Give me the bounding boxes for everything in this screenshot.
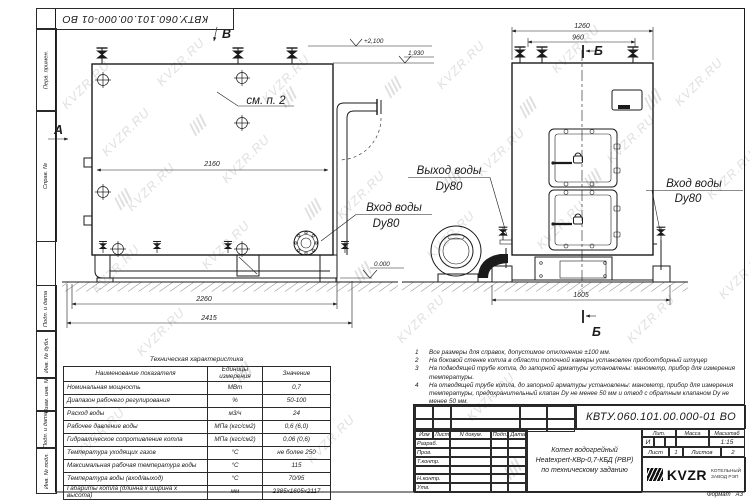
stamp-label: Справ. № bbox=[44, 163, 50, 189]
spec-unit: МПа (кгс/см2) bbox=[208, 434, 263, 447]
scale-header: Масштаб bbox=[709, 429, 745, 437]
spec-value: 115 bbox=[263, 460, 331, 473]
door-lock-icon bbox=[574, 153, 583, 163]
outlet-front-dy: Dy80 bbox=[436, 181, 463, 193]
stamp-label: Взам. инв. № bbox=[44, 377, 50, 413]
stamp-cell-vzam-inv: Взам. инв. № bbox=[36, 377, 57, 412]
dim-2160: 2160 bbox=[203, 161, 220, 168]
product-name-line: по техническому заданию bbox=[541, 466, 628, 476]
dim-960: 960 bbox=[572, 35, 584, 42]
spec-param: Расход воды bbox=[64, 408, 208, 421]
stamp-cell-inv-podl: Инв. № подл. bbox=[36, 447, 57, 494]
spec-unit: МПа (кгс/см2) bbox=[208, 421, 263, 434]
spec-unit: °С bbox=[208, 447, 263, 460]
note-number: 2 bbox=[415, 357, 429, 365]
spec-value: 0,6 (6,0) bbox=[263, 421, 331, 434]
valve-icon bbox=[515, 47, 526, 63]
spec-value: 70/95 bbox=[263, 473, 331, 486]
mass-value bbox=[676, 437, 709, 447]
inlet-side-dy: Dy80 bbox=[373, 218, 400, 230]
company-name-line1: КОТЕЛЬНЫЙ bbox=[711, 469, 741, 475]
title-block: КВТУ.060.101.00.000-01 ВО Изм Лист N док… bbox=[413, 404, 745, 492]
spec-row: Максимальная рабочая температура воды°С1… bbox=[64, 460, 331, 473]
target-mark-icon bbox=[234, 70, 250, 86]
change-table-empty bbox=[414, 405, 576, 429]
inlet-front-label: Вход воды bbox=[666, 178, 722, 190]
rotated-doc-number: КВТУ.060.101.00.000-01 ВО bbox=[62, 13, 208, 25]
note-text: На подводящей трубе котла, до запорной а… bbox=[429, 365, 744, 381]
spec-value: не более 250 bbox=[263, 447, 331, 460]
change-header-row: Изм Лист N докум. Подп. Дата bbox=[415, 430, 526, 439]
level-1930: 1,930 bbox=[408, 50, 424, 57]
spec-unit: °С bbox=[208, 460, 263, 473]
stamp-label: Подп. и дата bbox=[44, 290, 50, 326]
spec-value: 50-100 bbox=[263, 395, 331, 408]
note-number: 1 bbox=[415, 349, 429, 357]
dim-1260: 1260 bbox=[574, 23, 590, 30]
inlet-flange bbox=[294, 231, 318, 255]
valve-icon bbox=[287, 48, 298, 64]
role-row: Утв. bbox=[415, 483, 526, 492]
upper-door bbox=[549, 129, 620, 187]
product-name-cell: Котел водогрейный Heatexpert-КВр-0,7-КБД… bbox=[527, 429, 642, 493]
role-label: Т.контр. bbox=[415, 457, 450, 466]
stamp-cell-perv-primen: Перв. примен. bbox=[36, 28, 57, 112]
spec-param: Температура уходящих газов bbox=[64, 447, 208, 460]
spec-row: Температура уходящих газов°Сне более 250 bbox=[64, 447, 331, 460]
col-ndocum: N докум. bbox=[450, 430, 490, 439]
section-marker-b-top: Б bbox=[594, 44, 603, 58]
spec-row: Номинальная мощностьМВт0,7 bbox=[64, 382, 331, 395]
note-number: 3 bbox=[415, 365, 429, 381]
sheet-value: 1 bbox=[669, 447, 683, 457]
section-marker-b-bottom: Б bbox=[592, 325, 601, 339]
title-right-block: Лит. Масса Масштаб И 1:15 Лист 1 Листов … bbox=[642, 429, 746, 493]
lower-door bbox=[549, 190, 620, 250]
spec-value: 0,7 bbox=[263, 382, 331, 395]
inlet-front-dy: Dy80 bbox=[675, 193, 702, 205]
product-name-line: Heatexpert-КВр-0,7-КБД (РВР) bbox=[536, 456, 634, 466]
lit-value: И bbox=[642, 437, 654, 447]
valve-icon bbox=[233, 48, 244, 64]
spec-header: Значение bbox=[263, 367, 331, 382]
spec-unit: м3/ч bbox=[208, 408, 263, 421]
target-mark-icon bbox=[95, 184, 111, 200]
dim-2260: 2260 bbox=[195, 296, 212, 303]
role-row: Разраб. bbox=[415, 439, 526, 448]
role-row: Т.контр. bbox=[415, 457, 526, 466]
stamp-label: Инв. № дубл. bbox=[44, 337, 50, 373]
stamp-label: Подп. и дата bbox=[44, 411, 50, 447]
spec-param: Диапазон рабочего регулирования bbox=[64, 395, 208, 408]
sheet-label: Лист bbox=[642, 447, 669, 457]
notes-list: 1Все размеры для справок, допустимое отк… bbox=[415, 349, 744, 406]
spec-header: Наименование показателя bbox=[64, 367, 208, 382]
spec-row: Габариты котла (длинна х ширина х высота… bbox=[64, 486, 331, 500]
level-plus-2100: +2,100 bbox=[364, 38, 384, 45]
note-text: На отводящей трубе котла, до запорной ар… bbox=[429, 382, 744, 407]
role-label: Утв. bbox=[415, 483, 450, 492]
role-row: Пров. bbox=[415, 448, 526, 457]
dim-2415: 2415 bbox=[200, 315, 217, 322]
company-name: КОТЕЛЬНЫЙ ЗАВОД РЭП bbox=[711, 469, 741, 480]
note-number: 4 bbox=[415, 382, 429, 407]
spec-row: Температура воды (вход/выход)°С70/95 bbox=[64, 473, 331, 486]
spec-param: Гидравлическое сопротивление котла bbox=[64, 434, 208, 447]
spec-header-row: Наименование показателя Единицы измерени… bbox=[64, 367, 331, 382]
stamp-cell-podp-data-2: Подп. и дата bbox=[36, 410, 57, 449]
stamp-label: Перв. примен. bbox=[44, 51, 50, 90]
spec-row: Диапазон рабочего регулирования%50-100 bbox=[64, 395, 331, 408]
spec-param: Номинальная мощность bbox=[64, 382, 208, 395]
front-view-dimensions: 1260 960 1605 Б Б Выход воды Dy80 Вход в… bbox=[408, 23, 743, 339]
drain-valve-icon bbox=[224, 241, 232, 253]
stamp-cell-inv-dubl: Инв. № дубл. bbox=[36, 330, 57, 379]
note-item: 4На отводящей трубе котла, до запорной а… bbox=[415, 382, 744, 407]
spec-value: 0,06 (0,6) bbox=[263, 434, 331, 447]
target-mark-icon bbox=[95, 72, 111, 88]
note-item: 3На подводящей трубе котла, до запорной … bbox=[415, 365, 744, 381]
company-cell: KVZR КОТЕЛЬНЫЙ ЗАВОД РЭП bbox=[642, 457, 746, 492]
valve-icon bbox=[628, 47, 639, 63]
lit-header: Лит. bbox=[642, 429, 676, 437]
format-value: А3 bbox=[736, 492, 743, 498]
level-0000: 0.000 bbox=[374, 261, 390, 268]
title-doc-number: КВТУ.060.101.00.000-01 ВО bbox=[586, 411, 736, 423]
role-label bbox=[415, 466, 450, 475]
spec-value: 2385х1605х2117 bbox=[263, 486, 331, 500]
spec-param: Рабочее давление воды bbox=[64, 421, 208, 434]
role-label: Пров. bbox=[415, 448, 450, 457]
role-label: Н.контр. bbox=[415, 474, 450, 483]
title-doc-number-cell: КВТУ.060.101.00.000-01 ВО bbox=[576, 405, 746, 429]
company-logo-text: KVZR bbox=[667, 467, 707, 483]
signature-table: Изм Лист N докум. Подп. Дата Разраб. Про… bbox=[414, 429, 527, 493]
mass-header: Масса bbox=[676, 429, 709, 437]
company-name-line2: ЗАВОД РЭП bbox=[711, 475, 741, 481]
role-label: Разраб. bbox=[415, 439, 450, 448]
stamp-cell-sprav-no: Справ. № bbox=[36, 110, 57, 242]
dim-1605: 1605 bbox=[573, 292, 589, 299]
col-izm: Изм bbox=[415, 430, 433, 439]
inlet-side-label: Вход воды bbox=[366, 202, 422, 214]
spec-header: Единицы измерения bbox=[208, 367, 263, 382]
col-podp: Подп. bbox=[491, 430, 509, 439]
spec-table-title: Техническая характеристика bbox=[63, 356, 330, 363]
door-lock-icon bbox=[574, 214, 583, 224]
sheets-label: Листов bbox=[683, 447, 721, 457]
sheets-value: 2 bbox=[721, 447, 745, 457]
note-text: Все размеры для справок, допустимое откл… bbox=[429, 349, 744, 357]
blower-fan bbox=[431, 226, 508, 282]
product-name-line: Котел водогрейный bbox=[551, 446, 618, 456]
spec-unit: МВт bbox=[208, 382, 263, 395]
drain-valve-icon bbox=[153, 241, 161, 253]
stamp-cell-podp-data-1: Подп. и дата bbox=[36, 285, 57, 332]
drawing-sheet: KVZR.RU KVZR.RU KVZR.RU KVZR.RU KVZR.RU … bbox=[0, 0, 750, 500]
callout-see-p2: см. п. 2 bbox=[246, 95, 286, 107]
valve-icon bbox=[97, 48, 108, 64]
spec-row: Рабочее давление водыМПа (кгс/см2)0,6 (6… bbox=[64, 421, 331, 434]
spec-unit: °С bbox=[208, 473, 263, 486]
scale-value: 1:15 bbox=[709, 437, 745, 447]
valve-icon bbox=[537, 47, 548, 63]
format-label: Формат А3 bbox=[640, 492, 743, 498]
drain-valve-icon bbox=[99, 241, 107, 253]
stamp-label: Инв. № подл. bbox=[44, 453, 50, 489]
spec-unit: % bbox=[208, 395, 263, 408]
spec-param: Максимальная рабочая температура воды bbox=[64, 460, 208, 473]
kvzr-logo-icon bbox=[647, 468, 663, 481]
rotated-doc-number-box: КВТУ.060.101.00.000-01 ВО bbox=[36, 8, 234, 30]
spec-value: 24 bbox=[263, 408, 331, 421]
spec-unit: мм bbox=[208, 486, 263, 500]
role-row: Н.контр. bbox=[415, 474, 526, 483]
spec-row: Расход водым3/ч24 bbox=[64, 408, 331, 421]
note-item: 1Все размеры для справок, допустимое отк… bbox=[415, 349, 744, 357]
outlet-front-label: Выход воды bbox=[417, 165, 482, 177]
spec-param: Температура воды (вход/выход) bbox=[64, 473, 208, 486]
spec-param: Габариты котла (длинна х ширина х высота… bbox=[64, 486, 208, 500]
target-mark-icon bbox=[234, 115, 250, 131]
spec-row: Гидравлическое сопротивление котлаМПа (к… bbox=[64, 434, 331, 447]
col-list: Лист bbox=[433, 430, 451, 439]
format-word: Формат bbox=[707, 492, 731, 498]
role-row bbox=[415, 466, 526, 475]
pipe-valve-icon bbox=[341, 241, 349, 253]
col-data: Дата bbox=[508, 430, 526, 439]
spec-table: Наименование показателя Единицы измерени… bbox=[63, 366, 331, 500]
inlet-valve-icon bbox=[657, 227, 666, 240]
